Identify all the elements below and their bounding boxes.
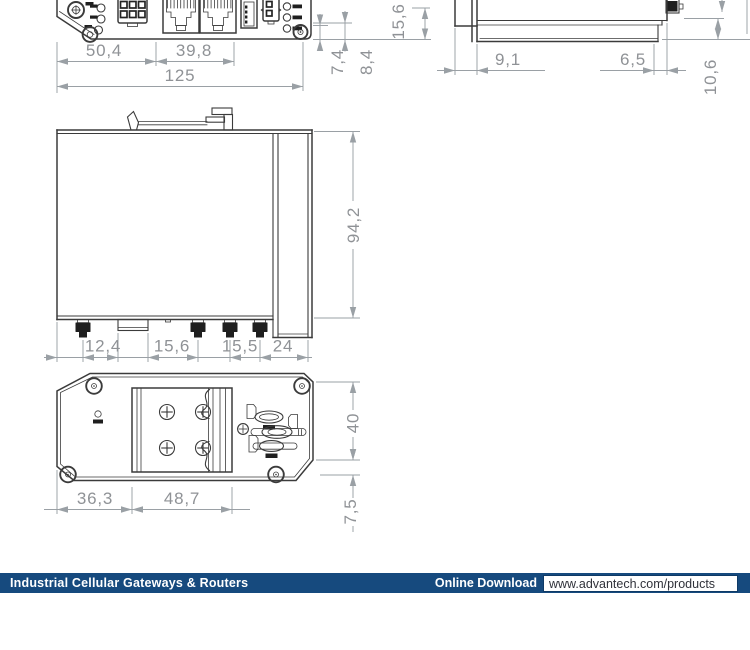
antenna-connector-stub [76, 320, 91, 338]
front-panel-view [57, 0, 311, 42]
dimension-drawing: 50,4 39,8 125 7,4 8,4 15,6 [0, 0, 750, 573]
dim-label: 8,4 [357, 49, 376, 75]
dim-label: 15,6 [154, 337, 190, 356]
dim-label: 6,5 [620, 50, 646, 69]
profile-view [57, 108, 312, 338]
led-label-mark [293, 16, 303, 20]
ethernet-port-2 [200, 0, 236, 33]
plate-screw [160, 441, 175, 456]
side-view [455, 0, 683, 42]
footer-download-label: Online Download [435, 576, 537, 590]
side-view-dims: 9,1 6,5 10,6 [437, 0, 750, 95]
footer-url-box[interactable]: www.advantech.com/products [543, 575, 738, 592]
plate-screw [160, 405, 175, 420]
dim-label: 36,3 [77, 489, 113, 508]
sim-label-mark [266, 454, 278, 459]
dim-label: 48,7 [164, 489, 200, 508]
antenna-connector-stub [223, 320, 238, 338]
footer-bar: Industrial Cellular Gateways & Routers O… [0, 573, 750, 593]
corner-screw [86, 378, 102, 394]
plate-screw [196, 441, 211, 456]
led-label-mark [293, 5, 303, 9]
dim-label: 94,2 [344, 207, 363, 243]
plate-screw [196, 405, 211, 420]
footer-url-text[interactable]: www.advantech.com/products [544, 576, 737, 591]
dim-label: 10,6 [701, 59, 720, 95]
dim-label: 15,5 [222, 337, 258, 356]
antenna-connector-stub [191, 320, 206, 338]
dim-label: 39,8 [176, 41, 212, 60]
corner-screw [294, 378, 310, 394]
dim-label: 50,4 [86, 41, 122, 60]
dim-label: 40 [344, 413, 363, 434]
usb-port [241, 0, 257, 28]
dim-label: 24 [273, 337, 294, 356]
status-leds [283, 3, 302, 32]
dim-label: 12,4 [85, 337, 121, 356]
rear-connector [666, 0, 683, 13]
sim-slot-cluster [238, 405, 306, 459]
antenna-connector-stub [253, 320, 268, 338]
dim-label: 7,5 [341, 498, 360, 524]
power-connector [118, 0, 147, 27]
dim-label: 7,4 [328, 49, 347, 75]
corner-screw [60, 467, 76, 483]
sma-antenna-connector-1 [68, 2, 84, 18]
ethernet-port-1 [163, 0, 199, 33]
datasheet-dimension-page: 50,4 39,8 125 7,4 8,4 15,6 [0, 0, 750, 650]
din-rail-clip [128, 108, 233, 130]
bottom-notch [118, 320, 148, 331]
din-mounting-plate [132, 388, 232, 472]
label-mark [93, 420, 103, 424]
footer-category-label: Industrial Cellular Gateways & Routers [10, 576, 248, 590]
dim-label: 15,6 [389, 3, 408, 39]
io-connector [261, 0, 282, 24]
bottom-view [57, 374, 313, 483]
dim-label: 9,1 [495, 50, 521, 69]
dim-label: 125 [165, 66, 196, 85]
